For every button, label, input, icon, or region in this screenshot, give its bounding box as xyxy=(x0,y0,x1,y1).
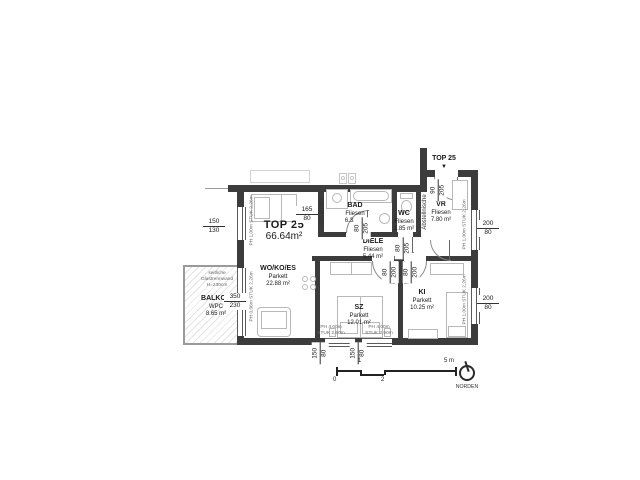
kitchen-appliance xyxy=(254,197,270,219)
room-label-wo: WO/KO/ES Parkett 22.88 m² xyxy=(245,265,311,289)
window-sz-2 xyxy=(362,338,392,347)
wall xyxy=(237,185,244,207)
dimension-sz-door: 80 200 xyxy=(382,261,399,283)
dimension-entrance-door: 90 205 xyxy=(430,179,447,201)
scale-label-5m: 5 m xyxy=(444,358,454,364)
room-label-ki: KI Parkett 10.25 m² xyxy=(395,289,449,313)
entrance-arrow-icon: ▼ xyxy=(424,164,464,170)
door-leaf-vr xyxy=(449,240,450,260)
window-left xyxy=(237,207,246,240)
note-vr-window: PH 1,00m STUK 2,26m xyxy=(461,208,466,250)
pillow xyxy=(448,326,466,337)
note-ki-window: PH 1,00m STUK 2,26m xyxy=(461,283,466,325)
shower-label: DU 90/90 xyxy=(320,190,326,234)
dimension-balcony-door: 350 230 xyxy=(224,293,246,310)
niche-label: Abstellnische xyxy=(422,186,428,238)
wall xyxy=(427,170,435,177)
floor-plan: TOP 25 66.64m² TOP 25 ▼ WO/KO/ES Parkett… xyxy=(0,0,640,480)
note-sz-window-1: PH 4,00m STUK 2,50m xyxy=(314,324,348,336)
room-label-diele: DIELE Fliesen 5.44 m² xyxy=(346,238,400,262)
door-leaf-wc xyxy=(412,237,413,253)
sofa-seat xyxy=(261,311,287,329)
desk-ki xyxy=(408,329,438,339)
scale-bar-segment xyxy=(360,374,384,376)
unit-title-area: 66.64m² xyxy=(252,231,316,242)
bathtub-basin xyxy=(353,191,389,201)
scale-label-0: 0 xyxy=(333,377,336,383)
note-balcony-door: PH 0,06m STUK 2,26m xyxy=(248,280,253,322)
washer-symbol-drum xyxy=(341,176,345,180)
dimension-sz-window-1: 150 80 xyxy=(312,342,329,364)
glass-partition-note: seitliche Glastrennwand H=230cm xyxy=(194,270,240,288)
dimension-ki-window: 200 80 xyxy=(477,295,499,312)
entrance-label: TOP 25 xyxy=(424,155,464,162)
north-label: NORDEN xyxy=(453,384,482,390)
scale-label-1: 1 xyxy=(358,358,361,364)
scale-bar: 0 1 2 5 m xyxy=(336,364,458,384)
note-left-window: PH 1,00m STUK 2,26m xyxy=(248,204,253,246)
wall xyxy=(392,338,478,345)
wall xyxy=(471,170,478,210)
dimension-wo-opening: 165 80 xyxy=(296,206,318,223)
toilet-tank xyxy=(400,193,413,199)
neighbor-outline xyxy=(250,170,310,183)
wall xyxy=(471,250,478,288)
dimension-vr-window: 200 80 xyxy=(477,220,499,237)
dimension-wc-door: 80 205 xyxy=(395,237,412,259)
wall xyxy=(237,240,244,268)
wardrobe-ki xyxy=(430,263,464,275)
dimension-ki-door: 80 200 xyxy=(403,261,420,283)
dryer-symbol-drum xyxy=(350,176,354,180)
party-wall-line xyxy=(205,188,229,189)
note-sz-window-2: PH 4,00m STUK 2,50m xyxy=(362,324,396,336)
scale-bar-segment xyxy=(336,370,360,372)
scale-bar-segment xyxy=(384,370,455,372)
wardrobe-sz-divider xyxy=(351,262,352,275)
scale-bar-tick xyxy=(455,367,457,376)
room-label-wc: WC Fliesen 1.85 m² xyxy=(387,210,421,234)
dimension-bad-door: 80 205 xyxy=(354,217,371,239)
scale-label-2: 2 xyxy=(381,377,384,383)
dimension-left-window: 150 130 xyxy=(203,218,225,235)
kitchen-counter-divider xyxy=(281,194,282,222)
